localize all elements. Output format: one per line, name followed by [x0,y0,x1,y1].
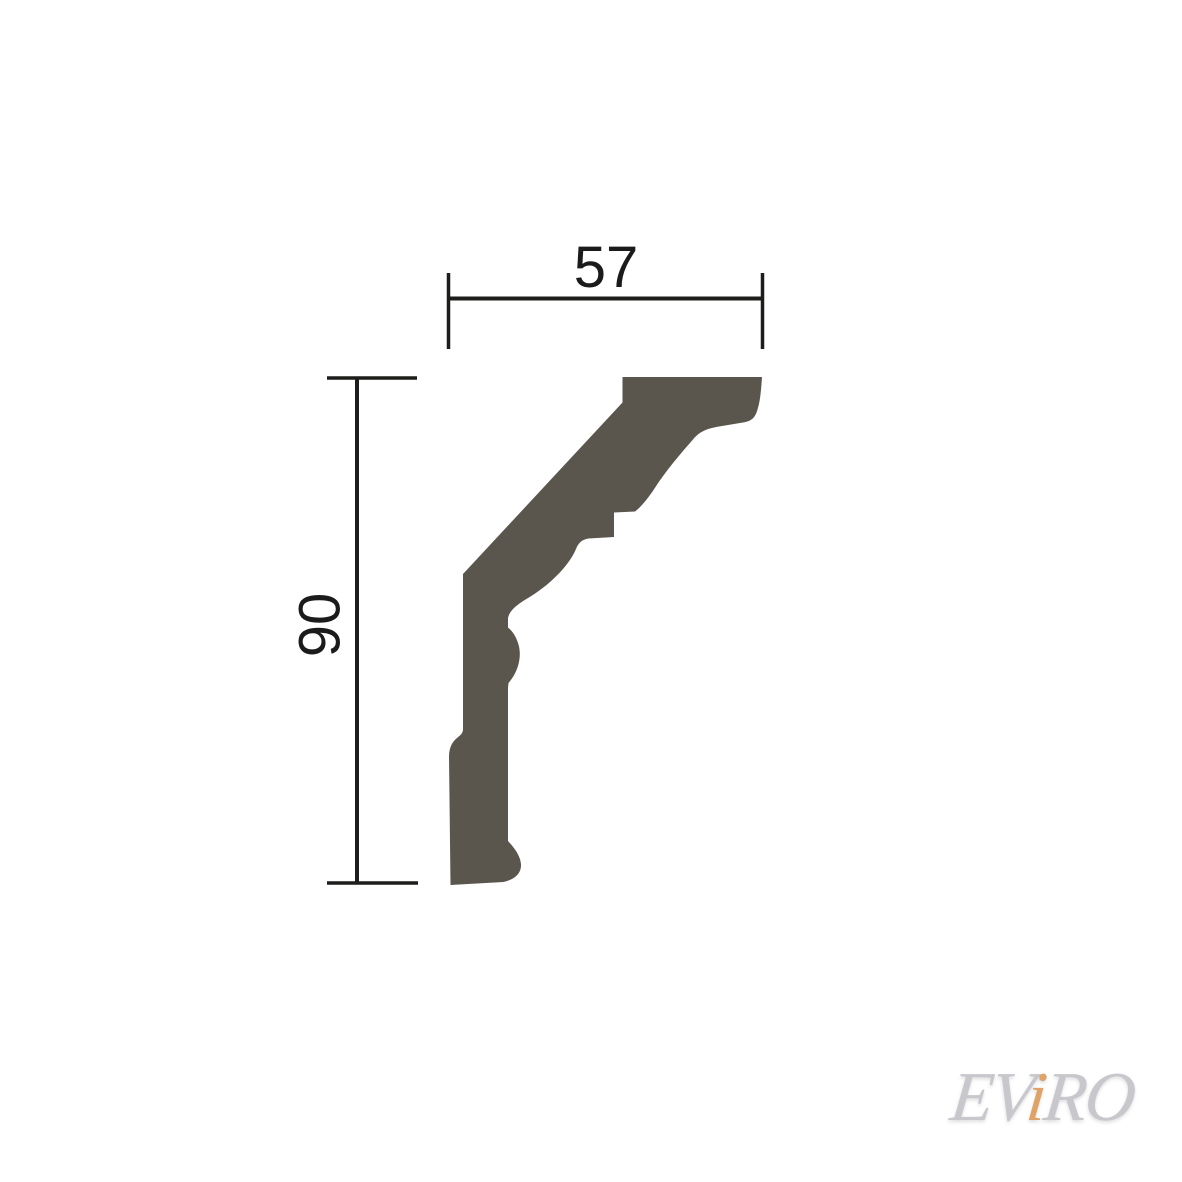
molding-profile-shape [449,377,762,885]
height-dimension-label: 90 [288,593,353,658]
drawing-page: 57 90 EViRO [0,0,1182,1182]
watermark-text-ev: EV [947,1059,1031,1136]
watermark-text-ro: RO [1041,1059,1138,1136]
watermark-logo: EViRO [947,1058,1138,1138]
technical-drawing-canvas: 57 90 [0,0,1182,1182]
width-dimension-label: 57 [574,235,639,300]
